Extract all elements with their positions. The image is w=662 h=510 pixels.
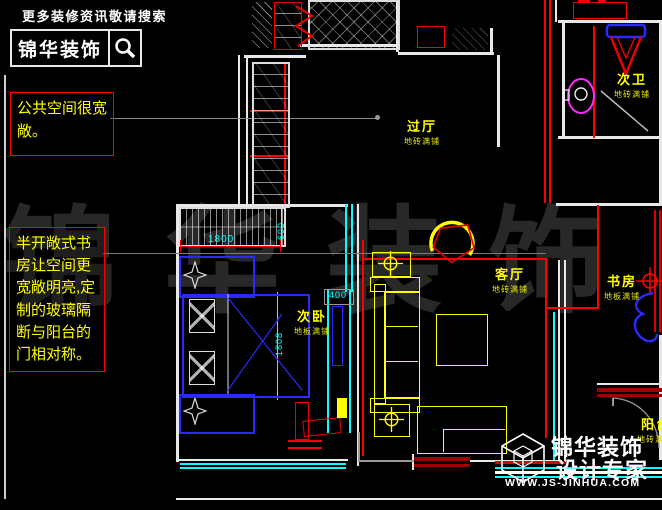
room-label-bedroom: 次卧 地板满铺 (284, 310, 340, 337)
leader-dot (375, 115, 380, 120)
room-finish: 地板满铺 (594, 291, 650, 302)
wall-line (555, 0, 557, 22)
wall-line (470, 460, 562, 462)
lamp-crosshair-icon (377, 250, 404, 277)
dimension-tick (180, 240, 181, 252)
wall-line (176, 459, 348, 461)
wall-line (238, 55, 240, 205)
ceiling-fan-icon (183, 261, 207, 289)
wall-step-line (358, 460, 414, 462)
room-label-balcony: 阳台 地砖满铺 (641, 418, 662, 445)
wall-line (176, 498, 662, 500)
wall-line (357, 204, 359, 466)
room-finish: 地砖满铺 (482, 284, 538, 295)
room-label-hallway: 过厅 地砖满铺 (392, 120, 452, 147)
logo-box: 锦华装饰 (10, 29, 142, 67)
room-label-living: 客厅 地砖满铺 (482, 268, 538, 295)
note-box-1: 公共空间很宽敞。 (10, 92, 114, 156)
wall-line (497, 55, 500, 147)
dresser-stool (302, 417, 341, 437)
room-name: 次卫 (604, 73, 660, 87)
dimension-1808: 1808 (274, 332, 284, 356)
room-finish: 地板满铺 (284, 326, 340, 337)
wall-line (558, 260, 560, 462)
yellow-block (337, 398, 347, 418)
room-name: 阳台 (641, 418, 662, 432)
tall-storage-cabinet (252, 62, 290, 208)
cad-floorplan-image: 锦华装饰 (0, 0, 662, 510)
ceiling-fan-icon (183, 397, 207, 425)
dimension-400: 400 (329, 290, 347, 300)
red-wall-line (545, 307, 599, 309)
wall-line (398, 52, 494, 55)
wall-line (4, 75, 6, 499)
room-finish: 地砖满铺 (637, 434, 662, 445)
tv-cabinet-line (443, 429, 444, 452)
armchair (420, 209, 484, 273)
search-icon (110, 36, 140, 60)
wall-line (597, 383, 662, 385)
window-band (414, 464, 470, 467)
cyan-wall-line (345, 204, 347, 292)
dimension-tick (280, 240, 281, 252)
note-box-2: 半开敞式书房让空间更宽敞明亮,定制的玻璃隔断与阳台的门相对称。 (9, 227, 105, 372)
room-label-bath: 次卫 地砖满铺 (604, 73, 660, 100)
room-finish: 地砖满铺 (604, 89, 660, 100)
red-zigzag-arrow-icon (292, 4, 316, 50)
dimension-line (180, 246, 281, 247)
clipped-red-annotation (573, 2, 627, 19)
wall-step-line (358, 432, 360, 462)
room-name: 次卧 (284, 310, 340, 324)
clipped-red-text-mark (578, 0, 590, 2)
leader-line-2 (103, 253, 546, 254)
window-band (597, 388, 662, 392)
red-wall-line (362, 240, 364, 456)
wall-line (558, 136, 662, 139)
cyan-window-line (180, 467, 346, 469)
room-name: 书房 (594, 275, 650, 289)
red-wall-line (545, 310, 547, 438)
toilet-icon (563, 74, 597, 116)
room-label-study: 书房 地板满铺 (594, 275, 650, 302)
wall-line (556, 203, 662, 206)
shoe-cabinet-hatch (252, 2, 272, 48)
room-name: 过厅 (392, 120, 452, 134)
dimension-1800: 1800 (208, 234, 234, 245)
entry-closet-hatched (308, 0, 400, 50)
coffee-table (436, 314, 488, 366)
pillow (189, 299, 215, 333)
entry-door-panel (417, 26, 445, 48)
wall-line (246, 55, 248, 205)
leader-line-1 (110, 118, 378, 119)
tv-cabinet (417, 406, 507, 454)
pillow (189, 351, 215, 385)
cyan-wall-line (553, 312, 555, 460)
cyan-window-line (180, 463, 346, 465)
sofa-seat-divider (384, 361, 418, 362)
red-wall-line (288, 447, 322, 449)
wall-line (244, 55, 306, 58)
room-finish: 地砖满铺 (392, 136, 452, 147)
glass-partition-line (349, 290, 351, 433)
wall-line (564, 260, 566, 462)
sofa-seats (384, 292, 420, 398)
entry-hatch (452, 28, 488, 50)
room-name: 客厅 (482, 268, 538, 282)
tv-cabinet-line (443, 429, 505, 430)
red-wall-line (549, 0, 551, 203)
search-hint-text: 更多装修资讯敬请搜索 (22, 6, 167, 25)
red-wall-line (545, 258, 547, 310)
clipped-red-text-mark (598, 0, 606, 2)
dimension-600: 600 (276, 222, 286, 240)
red-wall-line (288, 440, 322, 442)
logo-text: 锦华装饰 (12, 35, 108, 62)
cyan-wall-line (351, 204, 353, 292)
window-band (414, 457, 470, 461)
sofa-seat-divider (384, 326, 418, 327)
red-wall-line (544, 0, 546, 203)
lamp-crosshair-icon (378, 406, 405, 433)
header-branding: 更多装修资讯敬请搜索 锦华装饰 (10, 6, 167, 67)
wall-line (490, 28, 493, 55)
